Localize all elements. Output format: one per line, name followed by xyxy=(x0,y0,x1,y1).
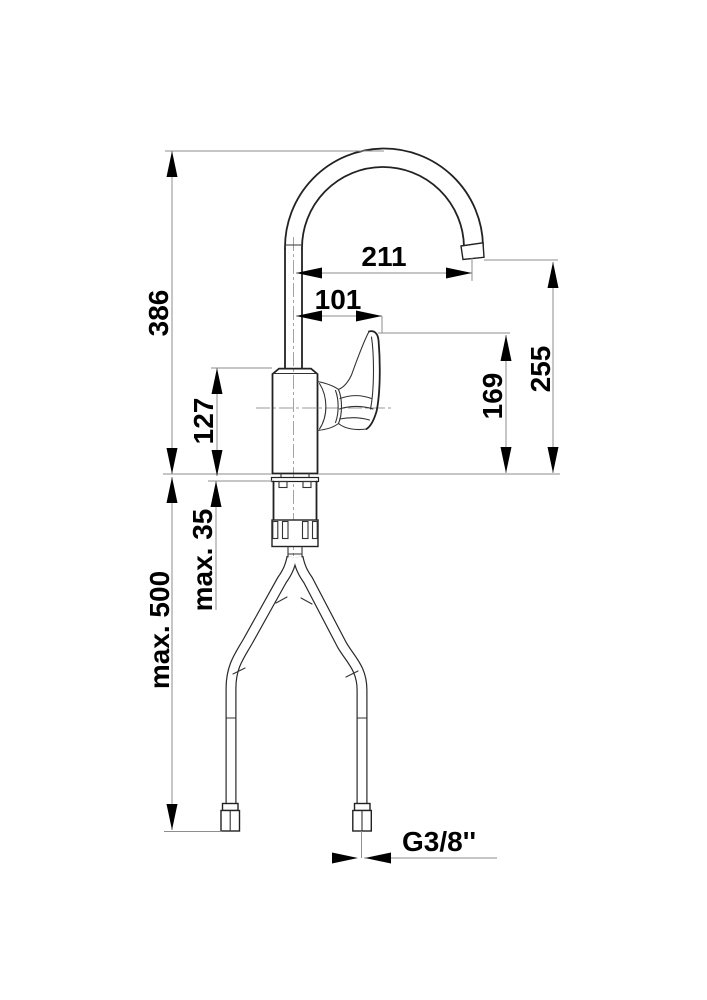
dim-overall-height: 386 xyxy=(143,290,174,337)
mixer-handle xyxy=(318,331,380,430)
dim-thread-size: G3/8'' xyxy=(402,826,476,857)
dim-spout-reach: 211 xyxy=(361,241,406,272)
dim-max-deck-thickness: max. 35 xyxy=(187,509,218,612)
dim-handle-height: 169 xyxy=(477,373,508,420)
technical-drawing-page: 386 211 101 127 169 255 max. 35 max. 500… xyxy=(0,0,707,1000)
faucet-body xyxy=(273,369,318,474)
dim-outlet-height: 255 xyxy=(525,346,556,393)
hose-connector-right xyxy=(353,804,372,832)
dim-handle-reach: 101 xyxy=(315,284,362,315)
hose-connector-left xyxy=(221,804,240,832)
faucet-technical-drawing: 386 211 101 127 169 255 max. 35 max. 500… xyxy=(0,0,707,1000)
spout-outlet xyxy=(461,243,484,260)
dim-body-height: 127 xyxy=(188,398,219,445)
supply-hoses xyxy=(226,557,367,803)
dim-max-hose-length: max. 500 xyxy=(144,571,175,689)
faucet-outline xyxy=(221,149,484,831)
mounting-shank xyxy=(272,474,319,558)
